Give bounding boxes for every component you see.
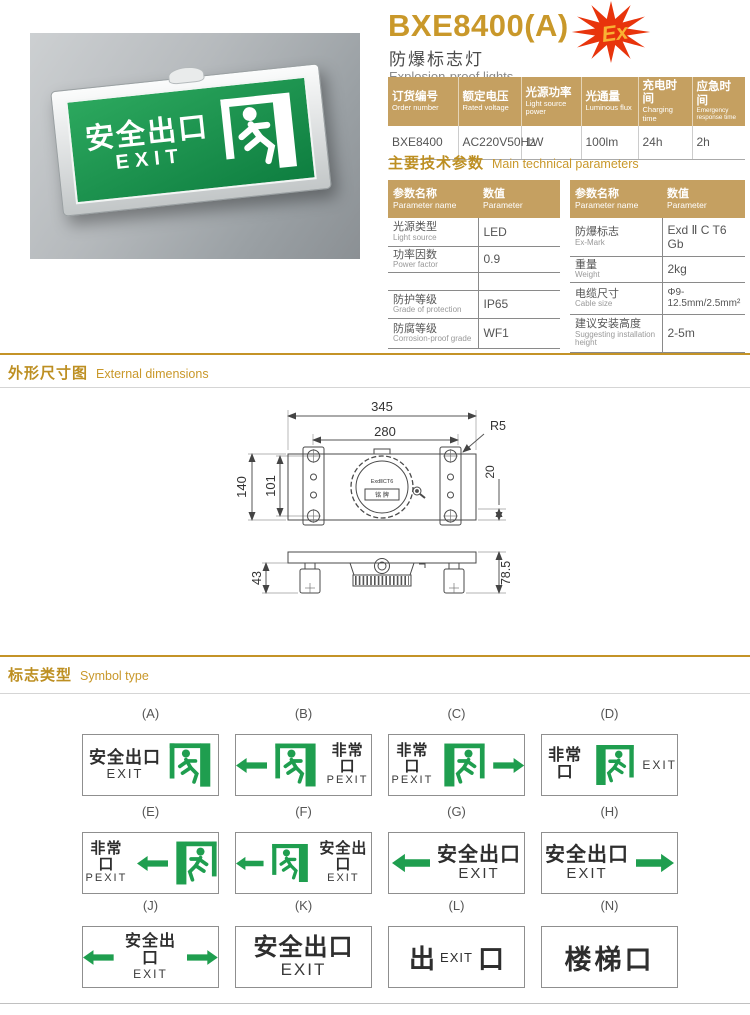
symbol-cell-n: (N) 楼梯口: [541, 898, 678, 988]
arrow-right-icon: [187, 949, 218, 966]
symbol-cell-f: (F) 安全出口EXIT: [235, 804, 372, 894]
exit-sign-variant: 出 EXIT 口: [388, 926, 525, 988]
header-cell: 充电时间Charging time: [638, 77, 692, 126]
dim-78-5: 78.5: [499, 561, 513, 585]
technical-drawing: 345 280 R5 140 101 20 43 78.5: [218, 392, 538, 642]
exit-sign-variant: 非常口PEXIT: [388, 734, 525, 796]
running-man-icon: [218, 89, 300, 176]
symbol-cell-l: (L) 出 EXIT 口: [388, 898, 525, 988]
symbol-label: (N): [541, 898, 678, 914]
header-cell: 光源功率Light source power: [521, 77, 581, 126]
page-title: BXE8400(A): [388, 8, 569, 44]
dim-345: 345: [371, 399, 393, 414]
exit-sign-variant: 非常口 EXIT: [541, 734, 678, 796]
symbol-label: (B): [235, 706, 372, 722]
exit-sign-variant: 安全出口EXIT: [388, 832, 525, 894]
param-row: 防爆标志Ex-MarkExd Ⅱ C T6 Gb: [570, 218, 745, 256]
exit-sign-product: 安全出口 EXIT: [50, 63, 332, 217]
arrow-right-icon: [493, 757, 524, 774]
sign-top-knob: [167, 65, 204, 85]
section-divider: [0, 655, 750, 657]
symbol-cell-a: (A) 安全出口EXIT: [82, 706, 219, 796]
section-title-cn: 外形尺寸图: [8, 365, 88, 382]
symbol-cell-c: (C) 非常口PEXIT: [388, 706, 525, 796]
symbol-cell-j: (J) 安全出口EXIT: [82, 898, 219, 988]
symbol-cell-d: (D) 非常口 EXIT: [541, 706, 678, 796]
order-table-header-row: 订货编号Order number 额定电压Rated voltage 光源功率L…: [388, 77, 745, 126]
section-underline: [0, 387, 750, 388]
exit-sign-variant: 非常口PEXIT: [82, 832, 219, 894]
sign-text-cn: 楼梯口: [565, 938, 655, 977]
symbol-label: (H): [541, 804, 678, 820]
symbol-label: (A): [82, 706, 219, 722]
param-row: 功率因数Power factor0.9: [388, 246, 560, 272]
running-man-icon: [443, 742, 486, 788]
header-cell: 参数名称Parameter name: [570, 180, 662, 218]
running-man-icon: [168, 742, 212, 788]
ex-mark-text: Ex: [600, 18, 631, 47]
section-title-en: External dimensions: [96, 367, 209, 381]
header-cell: 数值Parameter: [478, 180, 560, 218]
symbol-label: (E): [82, 804, 219, 820]
running-man-icon: [271, 840, 309, 886]
header-cell: 订货编号Order number: [388, 77, 458, 126]
dial-label: ExdⅡCT6: [371, 479, 394, 485]
symbol-cell-g: (G) 安全出口EXIT: [388, 804, 525, 894]
arrow-left-icon: [236, 855, 264, 872]
exit-sign-variant: 安全出口EXIT: [82, 734, 219, 796]
section-title-en: Main technical parameters: [492, 157, 639, 171]
param-row: 重量Weight2kg: [570, 256, 745, 282]
symbol-label: (C): [388, 706, 525, 722]
section-title-parameters: 主要技术参数Main technical parameters: [388, 152, 639, 173]
sign-text-en: EXIT: [440, 950, 473, 965]
arrow-right-icon: [636, 853, 674, 873]
dim-101: 101: [263, 475, 278, 497]
exit-sign-variant: 安全出口EXIT: [541, 832, 678, 894]
nameplate-label: 铭 牌: [375, 491, 389, 499]
section-title-cn: 标志类型: [8, 667, 72, 684]
symbol-label: (L): [388, 898, 525, 914]
product-name-cn: 防爆标志灯: [389, 45, 484, 70]
arrow-left-icon: [83, 949, 114, 966]
datasheet-page: BXE8400(A) Ex 防爆标志灯 Explosion-proof ligh…: [0, 0, 750, 1015]
dim-140: 140: [234, 476, 249, 498]
running-man-icon: [274, 742, 317, 788]
param-table-right: 参数名称Parameter name 数值Parameter 防爆标志Ex-Ma…: [570, 180, 745, 353]
exit-sign-variant: 安全出口EXIT: [235, 832, 372, 894]
arrow-left-icon: [392, 853, 430, 873]
section-title-dimensions: 外形尺寸图External dimensions: [8, 362, 209, 383]
header-cell: 参数名称Parameter name: [388, 180, 478, 218]
param-row: 建议安装高度Suggesting installation height2-5m: [570, 314, 745, 352]
dim-20: 20: [483, 465, 497, 479]
symbol-cell-k: (K) 安全出口EXIT: [235, 898, 372, 988]
header-cell: 额定电压Rated voltage: [458, 77, 521, 126]
sign-char: 口: [478, 939, 504, 976]
symbol-label: (K): [235, 898, 372, 914]
symbol-cell-b: (B) 非常口PEXIT: [235, 706, 372, 796]
param-row-empty: [388, 272, 560, 290]
sign-char: 出: [409, 939, 435, 976]
dim-280: 280: [374, 424, 396, 439]
symbol-label: (D): [541, 706, 678, 722]
page-bottom-rule: [0, 1003, 750, 1004]
running-man-icon: [175, 840, 218, 886]
symbol-label: (G): [388, 804, 525, 820]
symbol-cell-h: (H) 安全出口EXIT: [541, 804, 678, 894]
param-row: 光源类型Light sourceLED: [388, 218, 560, 246]
exit-sign-variant: 安全出口EXIT: [235, 926, 372, 988]
exit-sign-variant: 安全出口EXIT: [82, 926, 219, 988]
section-title-cn: 主要技术参数: [388, 155, 484, 172]
emergency-time-cell: 2h: [692, 126, 745, 160]
param-table-left: 参数名称Parameter name 数值Parameter 光源类型Light…: [388, 180, 560, 349]
header-cell: 光通量Luminous flux: [581, 77, 638, 126]
sign-text: 安全出口 EXIT: [84, 112, 213, 176]
dim-r5: R5: [490, 419, 506, 433]
param-row: 防腐等级Corrosion-proof gradeWF1: [388, 318, 560, 348]
symbol-label: (F): [235, 804, 372, 820]
exit-sign-variant: 楼梯口: [541, 926, 678, 988]
ex-starburst-icon: Ex: [568, 0, 654, 64]
symbol-label: (J): [82, 898, 219, 914]
param-row: 防护等级Grade of protectionIP65: [388, 290, 560, 318]
arrow-left-icon: [236, 757, 267, 774]
arrow-left-icon: [137, 855, 168, 872]
symbol-cell-e: (E) 非常口PEXIT: [82, 804, 219, 894]
section-title-symbols: 标志类型Symbol type: [8, 664, 149, 685]
header-cell: 数值Parameter: [662, 180, 745, 218]
header-cell: 应急时间Emergency response time: [692, 77, 745, 126]
section-divider: [0, 353, 750, 355]
product-photo: 安全出口 EXIT: [30, 33, 360, 259]
dim-43: 43: [250, 571, 264, 585]
order-table: 订货编号Order number 额定电压Rated voltage 光源功率L…: [388, 77, 745, 160]
param-row: 电缆尺寸Cable sizeΦ9-12.5mm/2.5mm²: [570, 282, 745, 314]
running-man-icon: [595, 742, 635, 788]
exit-sign-variant: 非常口PEXIT: [235, 734, 372, 796]
section-underline: [0, 693, 750, 694]
sign-green-panel: 安全出口 EXIT: [65, 76, 317, 205]
charging-time-cell: 24h: [638, 126, 692, 160]
section-title-en: Symbol type: [80, 669, 149, 683]
